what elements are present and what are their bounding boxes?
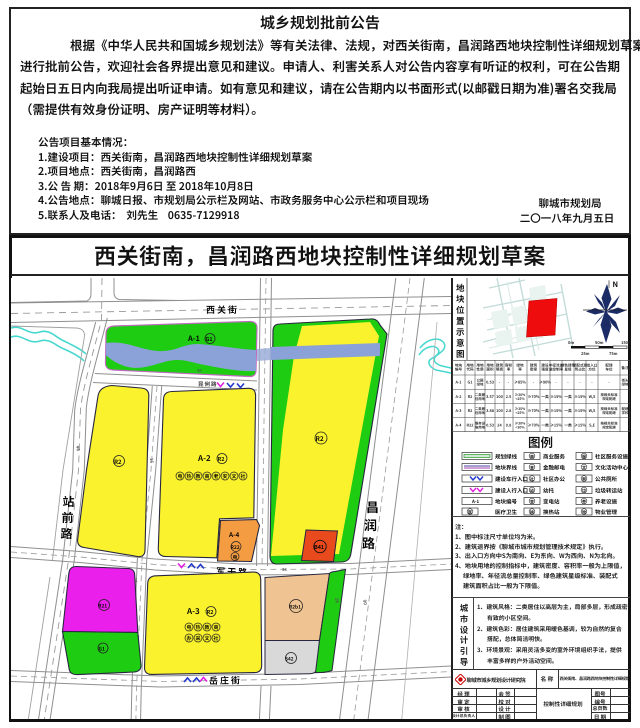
svg-text:住用地: 住用地: [474, 410, 485, 415]
svg-text:变电站: 变电站: [543, 498, 560, 506]
svg-text:-: -: [567, 381, 569, 386]
svg-text:2.5: 2.5: [505, 395, 511, 400]
svg-text:R2: R2: [467, 409, 473, 414]
svg-text:-: -: [579, 381, 581, 386]
svg-text:公共厕所: 公共厕所: [595, 475, 618, 483]
svg-text:W,S: W,S: [588, 395, 595, 400]
svg-text:幼: 幼: [530, 488, 534, 494]
svg-text:建设车行入口: 建设车行入口: [495, 475, 528, 483]
svg-text:A-1: A-1: [187, 333, 200, 344]
svg-text:方位: 方位: [588, 367, 596, 373]
svg-text:100: 100: [496, 409, 503, 414]
svg-text:G1: G1: [99, 646, 106, 653]
svg-text:75m: 75m: [609, 351, 618, 357]
svg-text:一类: 一类: [564, 394, 572, 400]
svg-text:0m: 0m: [568, 340, 574, 346]
svg-text:变: 变: [530, 499, 534, 505]
svg-text:一类: 一类: [564, 422, 572, 428]
svg-text:社: 社: [530, 476, 534, 482]
svg-text:一类: 一类: [541, 394, 549, 400]
svg-text:限高: 限高: [495, 367, 503, 373]
svg-text:性质: 性质: [476, 367, 484, 373]
svg-text:B41: B41: [314, 543, 324, 551]
svg-text:24: 24: [497, 423, 502, 428]
svg-text:A-1: A-1: [471, 499, 479, 505]
svg-text:文: 文: [232, 473, 237, 480]
svg-text:绿地: 绿地: [621, 382, 628, 387]
svg-text:≥15%: ≥15%: [550, 394, 562, 400]
svg-text:率: 率: [506, 367, 510, 373]
svg-text:西关街: 西关街: [206, 303, 239, 316]
svg-text:面积: 面积: [486, 367, 494, 373]
svg-text:R2b1: R2b1: [289, 604, 301, 611]
svg-text:25m: 25m: [581, 351, 590, 357]
svg-text:A-3: A-3: [455, 409, 461, 414]
svg-text:R22: R22: [466, 423, 474, 428]
svg-text:电: 电: [233, 554, 238, 561]
svg-text:-: -: [532, 381, 534, 386]
svg-text:A-4: A-4: [455, 423, 462, 428]
svg-text:住用地: 住用地: [474, 396, 485, 401]
svg-text:规定配建: 规定配建: [602, 424, 616, 429]
svg-text:-: -: [507, 381, 509, 386]
svg-text:3.57: 3.57: [486, 395, 495, 400]
svg-text:换热站: 换热站: [543, 508, 560, 516]
svg-text:星级: 星级: [564, 367, 572, 373]
svg-text:社区办公: 社区办公: [543, 475, 566, 483]
svg-text:A-2: A-2: [197, 453, 211, 464]
svg-text:一类: 一类: [541, 422, 549, 428]
svg-text:热: 热: [196, 624, 201, 631]
svg-text:2.8: 2.8: [505, 409, 511, 414]
svg-text:150m: 150m: [621, 340, 631, 346]
svg-text:<30%: <30%: [515, 424, 525, 429]
svg-text:≥15%: ≥15%: [550, 422, 562, 428]
svg-text:W,S: W,S: [588, 409, 595, 414]
svg-text:0.53: 0.53: [486, 381, 494, 386]
svg-text:一类: 一类: [564, 408, 572, 414]
svg-text:养: 养: [582, 499, 586, 505]
svg-text:规定配建: 规定配建: [602, 410, 616, 415]
svg-text:金: 金: [530, 465, 534, 471]
svg-text:0.8: 0.8: [505, 423, 511, 428]
svg-text:R2: R2: [218, 455, 225, 463]
svg-text:金融邮电: 金融邮电: [543, 464, 566, 472]
svg-text:社: 社: [241, 473, 246, 480]
svg-text:昆俐路: 昆俐路: [198, 380, 218, 388]
svg-text:绿地: 绿地: [476, 382, 483, 387]
svg-text:教: 教: [196, 473, 201, 480]
svg-text:G1: G1: [467, 381, 472, 386]
svg-text:R21: R21: [98, 603, 107, 610]
svg-text:图: 图: [456, 348, 465, 360]
svg-text:厕: 厕: [582, 476, 586, 482]
svg-text:-: -: [498, 381, 500, 386]
svg-text:密度: 密度: [529, 367, 537, 373]
svg-text:幼托: 幼托: [543, 487, 555, 495]
svg-text:-: -: [555, 381, 557, 386]
svg-text:医疗卫生: 医疗卫生: [495, 508, 518, 516]
svg-text:站: 站: [63, 493, 75, 510]
svg-text:施用地: 施用地: [474, 424, 485, 429]
svg-text:编号: 编号: [454, 367, 462, 373]
svg-text:文化活动中心: 文化活动中心: [595, 464, 629, 472]
svg-text:50m: 50m: [595, 340, 604, 346]
svg-text:商: 商: [205, 473, 210, 480]
svg-text:规划绿线: 规划绿线: [495, 453, 518, 461]
svg-text:≥85%: ≥85%: [514, 380, 526, 386]
svg-text:-: -: [591, 381, 593, 386]
svg-text:前: 前: [62, 509, 74, 526]
svg-text:R2: R2: [114, 457, 122, 466]
svg-text:<25%: <25%: [515, 410, 525, 415]
svg-text:A-3: A-3: [186, 606, 200, 617]
svg-text:一类: 一类: [541, 408, 549, 414]
svg-text:≥15%: ≥15%: [574, 422, 586, 428]
svg-text:商: 商: [214, 624, 219, 631]
svg-text:热: 热: [187, 473, 192, 480]
svg-text:0.53: 0.53: [486, 423, 494, 428]
svg-text:建设人行入口: 建设人行入口: [495, 487, 528, 495]
svg-text:R2: R2: [316, 433, 324, 443]
svg-text:备注: 备注: [621, 365, 629, 371]
svg-text:老: 老: [214, 473, 219, 480]
svg-text:养老设施: 养老设施: [595, 498, 618, 506]
svg-text:≥15%: ≥15%: [574, 408, 586, 414]
svg-text:路: 路: [61, 525, 73, 542]
svg-text:垃圾转运站: 垃圾转运站: [595, 487, 623, 495]
svg-text:商: 商: [530, 454, 534, 460]
svg-text:采: 采: [196, 635, 201, 642]
svg-text:S,E: S,E: [589, 423, 596, 428]
svg-text:≥15%: ≥15%: [550, 408, 562, 414]
svg-text:垃: 垃: [582, 488, 586, 494]
svg-text:R2: R2: [467, 395, 473, 400]
svg-text:社: 社: [214, 635, 219, 642]
svg-text:电: 电: [178, 473, 183, 480]
svg-text:学校: 学校: [621, 410, 628, 415]
svg-text:社区服务设施: 社区服务设施: [595, 453, 629, 461]
svg-text:岳庄街: 岳庄街: [209, 673, 242, 687]
svg-text:服: 服: [582, 454, 586, 460]
svg-text:昌: 昌: [366, 497, 379, 516]
svg-text:物: 物: [582, 509, 586, 515]
svg-text:A-1: A-1: [455, 381, 461, 386]
svg-text:商业服务: 商业服务: [543, 453, 566, 461]
svg-text:≥90%: ≥90%: [539, 380, 551, 386]
svg-text:医: 医: [468, 509, 472, 515]
svg-text:≥70%: ≥70%: [527, 422, 539, 428]
svg-text:A-2: A-2: [455, 395, 462, 400]
svg-text:办: 办: [187, 635, 192, 642]
svg-text:规定配建: 规定配建: [602, 396, 616, 401]
svg-text:教: 教: [205, 624, 210, 631]
svg-text:率: 率: [518, 367, 522, 373]
svg-text:30: 30: [197, 368, 202, 374]
svg-text:R2: R2: [207, 608, 214, 616]
svg-text:电: 电: [187, 624, 192, 631]
svg-text:<25%: <25%: [515, 396, 525, 401]
svg-text:筑占比: 筑占比: [574, 367, 585, 373]
svg-text:S42: S42: [285, 656, 294, 663]
svg-text:G1: G1: [206, 335, 213, 343]
svg-text:36: 36: [282, 567, 287, 573]
svg-text:物业管理: 物业管理: [595, 508, 618, 516]
svg-text:16: 16: [148, 458, 154, 464]
svg-text:车位: 车位: [605, 367, 613, 373]
svg-text:-: -: [608, 381, 610, 386]
svg-text:R22: R22: [231, 544, 240, 551]
svg-text:地块界线: 地块界线: [495, 464, 518, 472]
svg-text:≥15%: ≥15%: [574, 394, 586, 400]
svg-text:100: 100: [496, 395, 503, 400]
svg-text:地块编号: 地块编号: [495, 498, 518, 506]
svg-text:A-4: A-4: [228, 529, 239, 539]
svg-text:≥70%: ≥70%: [527, 394, 539, 400]
svg-text:路: 路: [362, 533, 375, 552]
svg-text:润: 润: [364, 515, 377, 534]
svg-text:安: 安: [223, 473, 228, 480]
svg-text:代码: 代码: [466, 367, 474, 373]
svg-text:3.88: 3.88: [486, 409, 495, 414]
svg-text:文: 文: [205, 635, 210, 642]
svg-text:≥70%: ≥70%: [527, 408, 539, 414]
svg-text:文: 文: [582, 465, 586, 471]
svg-text:换: 换: [530, 509, 534, 515]
